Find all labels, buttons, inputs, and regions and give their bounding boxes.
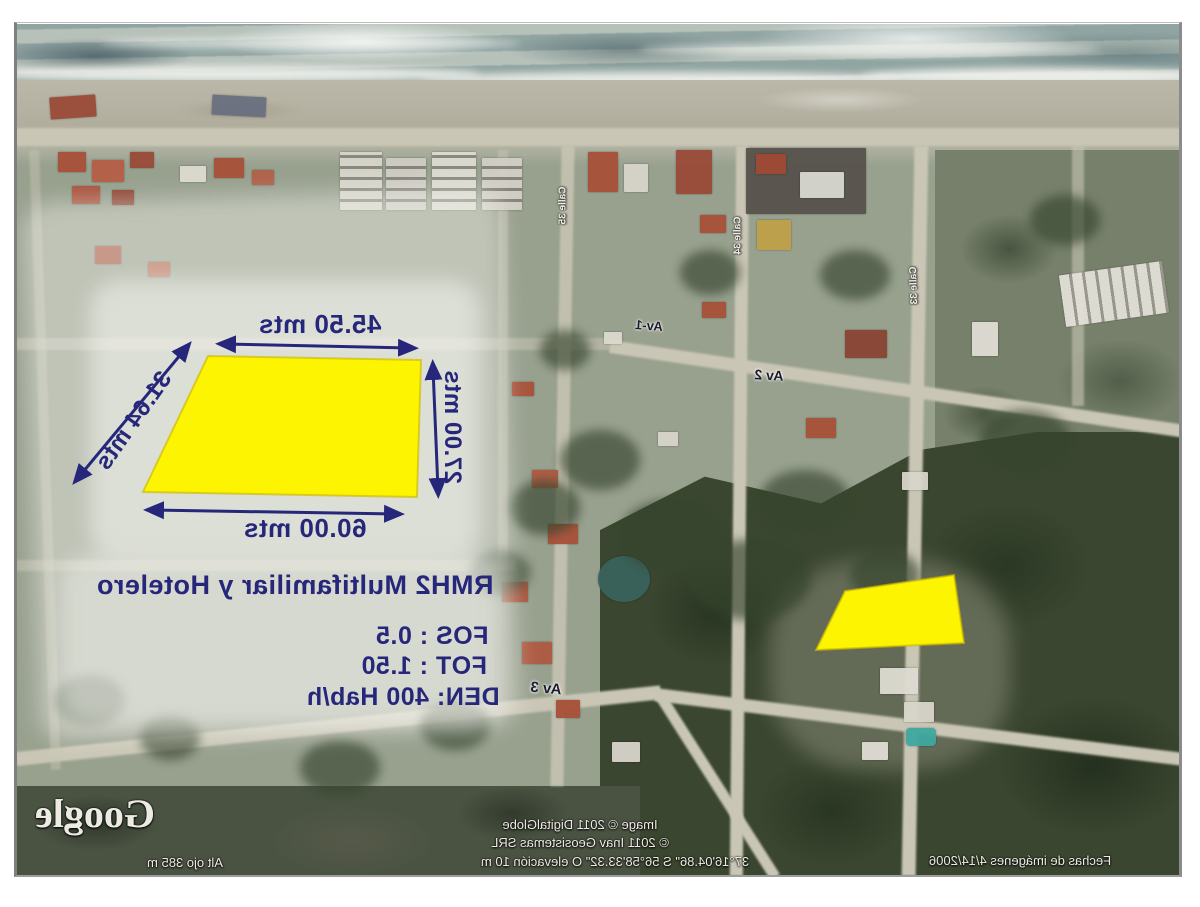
imagery-credit-1: Image © 2011 DigitalGlobe (380, 817, 780, 832)
building (180, 166, 206, 182)
trees (540, 330, 590, 370)
building (862, 742, 888, 760)
building (800, 172, 844, 198)
trees (820, 250, 890, 300)
google-earth-logo: Google (20, 790, 170, 837)
zoning-fot: FOT : 1.50 (339, 652, 509, 681)
zoning-fos: FOS : 0.5 (352, 622, 512, 651)
imagery-date-readout: Fechas de imágenes 4/14/2006 (855, 853, 1185, 868)
dimension-label-right: 27.00 mts (438, 357, 466, 497)
building (588, 152, 618, 192)
trees (510, 480, 580, 535)
trees (760, 470, 850, 530)
swimming-pool (906, 728, 936, 746)
imagery-credit-2: © 2011 Inav Geosistemas SRL (380, 835, 780, 850)
trees (1030, 195, 1100, 245)
building (512, 382, 534, 396)
building (49, 94, 96, 119)
trees (980, 410, 1070, 470)
building (612, 742, 640, 762)
building (880, 668, 918, 694)
satellite-map[interactable] (0, 0, 1200, 907)
building (556, 700, 580, 718)
coastal-road (0, 128, 1200, 146)
trees (560, 430, 640, 490)
building (522, 642, 552, 664)
trees (680, 250, 740, 295)
frame-top (0, 0, 1200, 24)
building (756, 154, 786, 174)
building (214, 158, 244, 178)
wave-crest (640, 44, 1100, 54)
trees (300, 740, 380, 795)
building (130, 152, 154, 168)
building (252, 170, 274, 185)
trees (690, 540, 810, 620)
building (212, 95, 267, 118)
building (92, 160, 124, 182)
dimension-label-bottom: 60.00 mts (200, 513, 410, 544)
zoning-title: RMH2 Multifamiliar y Hotelero (95, 570, 495, 601)
building (702, 302, 726, 318)
zoning-den: DEN: 400 Hab/h (298, 683, 508, 712)
frame-right (1181, 0, 1200, 907)
wave-crest (100, 38, 520, 48)
eye-altitude-readout: Alt ojo 385 m (110, 855, 260, 870)
beach (0, 80, 1200, 130)
building (845, 330, 887, 358)
street-label-cross2: Calle 34 (733, 201, 744, 271)
building (624, 164, 648, 192)
building (972, 322, 998, 356)
building (58, 152, 86, 172)
frame-bottom (0, 876, 1200, 907)
building (757, 220, 791, 250)
dimension-label-top: 45.50 mts (215, 309, 425, 340)
street-label-cross1: Calle 35 (558, 171, 569, 241)
building (676, 150, 712, 194)
trees (850, 550, 920, 600)
building (604, 332, 622, 344)
building (902, 472, 928, 490)
building (658, 432, 678, 446)
frame-left (0, 0, 15, 907)
coordinates-readout: 37°16'04.86" S 56°58'33.32" O elevación … (340, 854, 890, 869)
building (700, 215, 726, 233)
building (806, 418, 836, 438)
building (904, 702, 934, 722)
